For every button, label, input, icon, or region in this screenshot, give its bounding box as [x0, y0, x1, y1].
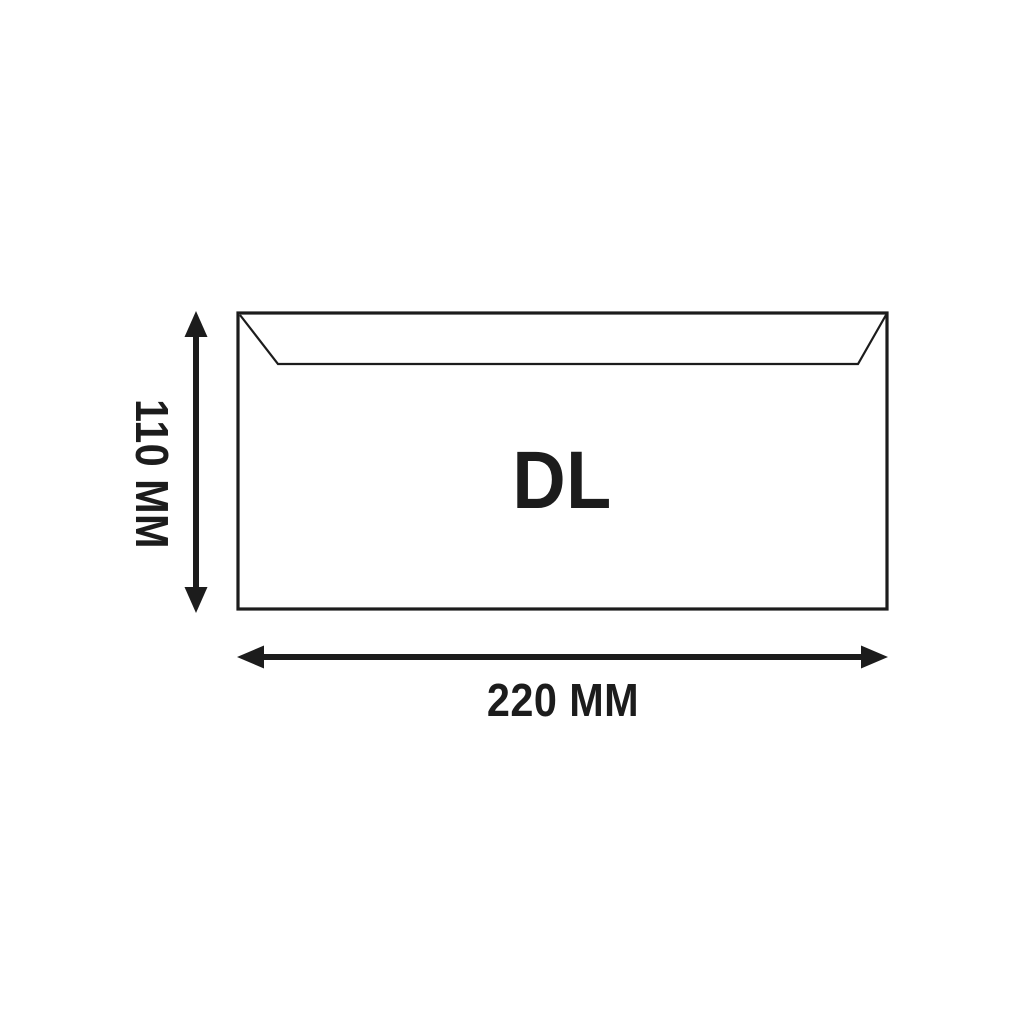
width-arrow-head-right: [861, 646, 888, 669]
envelope-size-label: DL: [512, 440, 611, 522]
height-arrow-head-top: [185, 311, 208, 337]
height-label: 110 MM: [129, 399, 175, 549]
width-dimension-arrow: [237, 646, 888, 669]
envelope-flap: [240, 315, 886, 364]
height-dimension-arrow: [185, 311, 208, 613]
height-arrow-head-bottom: [185, 587, 208, 613]
width-label: 220 MM: [487, 677, 639, 723]
width-arrow-head-left: [237, 646, 264, 669]
envelope-diagram: DL 110 MM 220 MM: [0, 0, 1024, 1024]
